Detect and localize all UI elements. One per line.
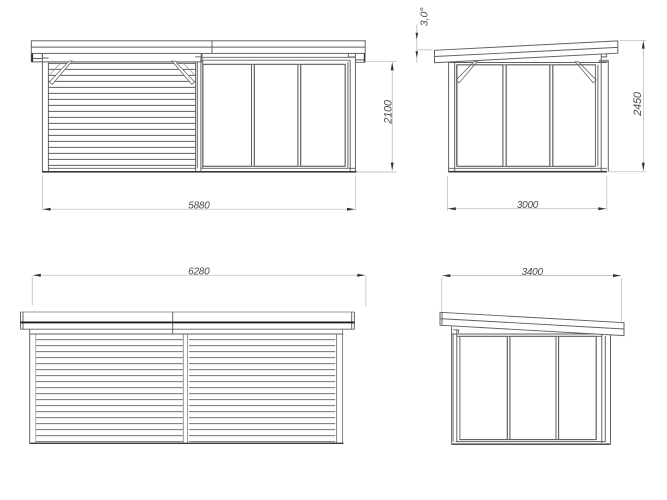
svg-text:6280: 6280 — [188, 266, 210, 277]
svg-text:5880: 5880 — [188, 200, 210, 211]
svg-text:3,0°: 3,0° — [419, 7, 431, 26]
svg-text:3000: 3000 — [517, 200, 539, 211]
svg-text:3400: 3400 — [522, 267, 544, 278]
svg-text:2450: 2450 — [632, 91, 644, 117]
svg-text:2100: 2100 — [382, 99, 394, 125]
